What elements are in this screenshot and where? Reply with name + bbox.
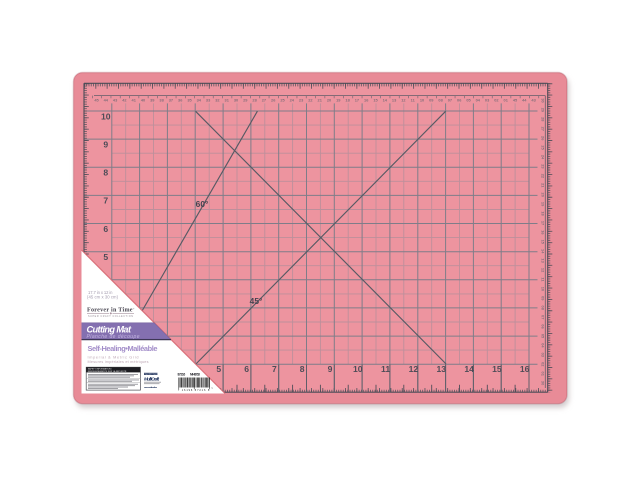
svg-text:10: 10 xyxy=(353,364,363,374)
svg-text:8: 8 xyxy=(103,168,108,178)
svg-text:MultiCraft.: MultiCraft. xyxy=(144,376,160,382)
svg-text:>: > xyxy=(211,386,213,390)
svg-text:Imported / Importé par: Imported / Importé par xyxy=(145,373,162,376)
svg-text:Mesures impériales et métrique: Mesures impériales et métriques xyxy=(88,360,149,364)
svg-text:37: 37 xyxy=(169,97,173,102)
svg-text:13: 13 xyxy=(437,364,447,374)
svg-text:27: 27 xyxy=(262,97,266,102)
svg-text:5: 5 xyxy=(216,364,221,374)
svg-text:17: 17 xyxy=(541,221,546,225)
svg-text:30: 30 xyxy=(541,98,546,102)
svg-text:®: ® xyxy=(133,307,135,310)
svg-text:87216: 87216 xyxy=(178,372,186,376)
svg-text:10: 10 xyxy=(541,287,546,291)
svg-text:14: 14 xyxy=(464,364,474,374)
svg-text:07: 07 xyxy=(541,315,546,319)
svg-text:15: 15 xyxy=(492,364,502,374)
svg-text:RENSEIGNEMENTS SUR LA SÉCURITÉ: RENSEIGNEMENTS SUR LA SÉCURITÉ xyxy=(88,370,127,373)
svg-text:6: 6 xyxy=(103,224,108,234)
svg-text:Self-Healing•Malléable: Self-Healing•Malléable xyxy=(88,344,158,353)
svg-text:9: 9 xyxy=(103,139,108,149)
svg-text:11: 11 xyxy=(381,364,390,374)
svg-text:Imperial & Metric Grid: Imperial & Metric Grid xyxy=(88,355,139,359)
svg-text:17: 17 xyxy=(355,97,359,102)
svg-text:6: 6 xyxy=(244,364,249,374)
svg-text:SUPER CRAFT COLLECTION: SUPER CRAFT COLLECTION xyxy=(88,315,133,318)
svg-text:30: 30 xyxy=(234,97,238,102)
svg-text:MH-8716: MH-8716 xyxy=(190,372,200,376)
svg-text:27: 27 xyxy=(541,127,546,131)
svg-text:(45 cm x 30 cm): (45 cm x 30 cm) xyxy=(87,295,119,300)
svg-text:20: 20 xyxy=(541,193,546,197)
svg-text:9: 9 xyxy=(328,364,333,374)
svg-text:7 16198 87216 8: 7 16198 87216 8 xyxy=(178,389,210,392)
svg-text:60°: 60° xyxy=(196,199,209,209)
svg-text:12: 12 xyxy=(409,364,419,374)
svg-text:16: 16 xyxy=(520,364,530,374)
svg-text:7: 7 xyxy=(272,364,277,374)
svg-text:www.multicraft.ca: www.multicraft.ca xyxy=(144,386,158,389)
svg-text:Planche de découpe: Planche de découpe xyxy=(87,334,140,340)
svg-text:5: 5 xyxy=(103,252,108,262)
svg-text:07: 07 xyxy=(448,97,452,102)
svg-text:Cutting Mat: Cutting Mat xyxy=(87,324,132,334)
svg-text:10: 10 xyxy=(420,97,424,102)
svg-text:7: 7 xyxy=(103,196,108,206)
svg-text:45°: 45° xyxy=(250,296,263,306)
svg-text:20: 20 xyxy=(327,97,331,102)
svg-text:10: 10 xyxy=(101,111,111,121)
svg-text:40: 40 xyxy=(141,97,145,102)
svg-text:8: 8 xyxy=(300,364,305,374)
svg-text:Forever in Time: Forever in Time xyxy=(87,307,133,313)
svg-text:30: 30 xyxy=(541,381,546,385)
